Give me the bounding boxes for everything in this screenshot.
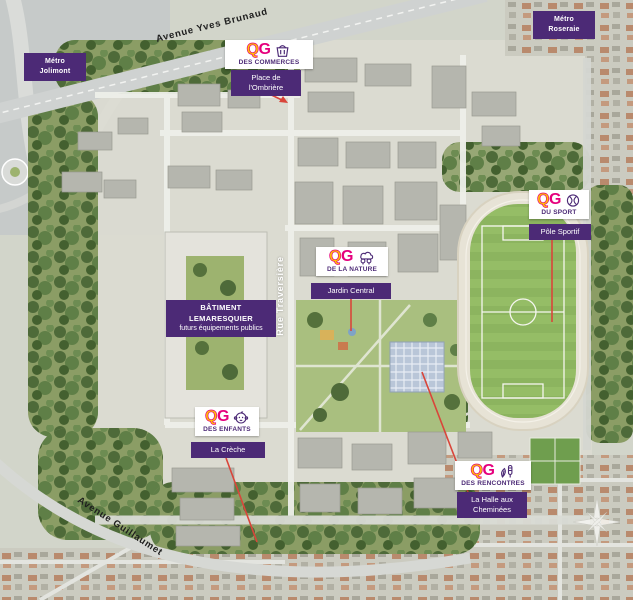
halle-cheminees-badge: La Halle aux Cheminées <box>457 492 527 518</box>
metro-roseraie-line2: Roseraie <box>536 25 592 35</box>
badge-line: Jardin Central <box>328 286 375 295</box>
baby-face-icon <box>233 410 249 425</box>
street-label-rue-traversiere: Rue Traversière <box>275 240 285 352</box>
qg-commerces-subtitle: DES COMMERCES <box>228 59 310 66</box>
tree-cloud-icon <box>357 250 375 265</box>
badge-line: l'Ombrière <box>235 83 297 93</box>
lemaresquier-line1: BÂTIMENT LEMARESQUIER <box>171 303 271 324</box>
qg-commerces-card: QG DES COMMERCES <box>225 40 313 69</box>
qg-logo: QG <box>537 192 561 208</box>
qg-rencontres-card: QG DES RENCONTRES <box>455 461 531 490</box>
qg-enfants-subtitle: DES ENFANTS <box>198 426 256 433</box>
badge-line: Pôle Sportif <box>541 227 580 236</box>
qg-logo: QG <box>247 42 271 58</box>
metro-jolimont-line1: Métro <box>27 57 83 67</box>
playground <box>320 330 334 340</box>
badge-line: Cheminées <box>461 505 523 515</box>
tennis-ball-icon <box>565 193 581 208</box>
qg-sport-subtitle: DU SPORT <box>532 209 586 216</box>
badge-line: La Crèche <box>211 445 246 454</box>
qg-logo: QG <box>471 463 495 479</box>
qg-nature-subtitle: DE LA NATURE <box>319 266 385 273</box>
metro-jolimont-badge: Métro Jolimont <box>24 53 86 81</box>
jardin-central-badge: Jardin Central <box>311 283 391 299</box>
qg-sport-card: QG DU SPORT <box>529 190 589 219</box>
halle-aux-cheminees-roof <box>390 342 444 392</box>
shopping-basket-icon <box>274 43 291 58</box>
qg-enfants-card: QG DES ENFANTS <box>195 407 259 436</box>
qg-logo: QG <box>329 249 353 265</box>
masterplan-page: Avenue Yves Brunaud Avenue Guillaumet Ru… <box>0 0 633 600</box>
badge-line: Place de <box>251 73 280 82</box>
leaf-chimney-icon <box>498 464 515 479</box>
qg-rencontres-subtitle: DES RENCONTRES <box>458 480 528 487</box>
metro-jolimont-line2: Jolimont <box>27 67 83 77</box>
metro-roseraie-badge: Métro Roseraie <box>533 11 595 39</box>
lemaresquier-line2: futurs équipements publics <box>171 324 271 334</box>
qg-logo: QG <box>205 409 229 425</box>
badge-line: La Halle aux <box>471 495 513 504</box>
lemaresquier-badge: BÂTIMENT LEMARESQUIER futurs équipements… <box>166 300 276 337</box>
place-ombriere-badge: Place de l'Ombrière <box>231 70 301 96</box>
pole-sportif-badge: Pôle Sportif <box>529 224 591 240</box>
la-creche-badge: La Crèche <box>191 442 265 458</box>
metro-roseraie-line1: Métro <box>536 15 592 25</box>
qg-nature-card: QG DE LA NATURE <box>316 247 388 276</box>
